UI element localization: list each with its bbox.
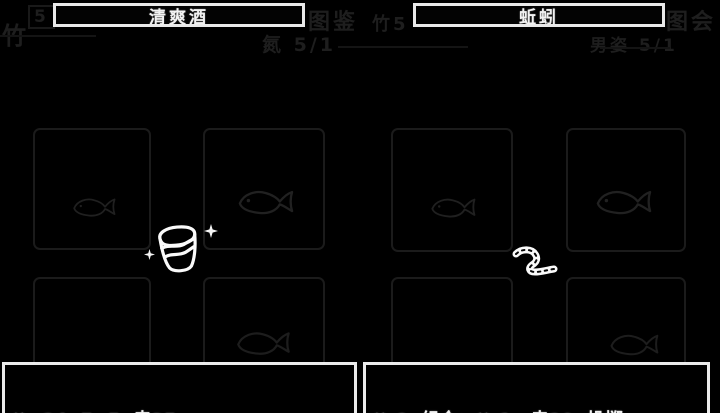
ghost-fish-icon (72, 194, 116, 221)
left-item-stats-box: ♡+24, E+5, 卖35 (2, 362, 357, 413)
ghost-line (338, 46, 468, 48)
ghost-text: 竹 (2, 16, 29, 51)
right-item-title-box: 蚯蚓 (413, 3, 665, 27)
drink-glass-icon[interactable] (151, 221, 208, 279)
left-item-title: 清爽酒 (149, 3, 209, 28)
ghost-fish-icon (430, 194, 476, 222)
inventory-slot[interactable] (33, 128, 151, 250)
sparkle-icon (204, 224, 218, 238)
right-item-stats-box: ♡-8, 组合：♡-1, 卖20, 投掷 走地鱼=大血包 (363, 362, 710, 413)
left-item-title-box: 清爽酒 (53, 3, 305, 27)
sparkle-icon (144, 249, 155, 260)
ghost-fish-icon (605, 330, 663, 360)
ghost-text: 男姿 5/1 (590, 31, 678, 56)
game-screen: 竹 5 图鉴 竹5 氮 5/1 图会 男姿 5/1 清爽酒 蚯蚓 (0, 0, 720, 413)
ghost-text: 5 (28, 5, 55, 29)
right-item-title: 蚯蚓 (519, 3, 559, 28)
ghost-text: 竹5 (372, 10, 409, 36)
ghost-line (600, 47, 670, 49)
earthworm-icon[interactable] (510, 245, 562, 279)
ghost-fish-icon (237, 185, 294, 220)
ghost-text: 氮 5/1 (262, 30, 336, 57)
ghost-fish-icon (595, 185, 652, 220)
ghost-line (0, 35, 96, 37)
inventory-slot[interactable] (391, 128, 513, 252)
ghost-fish-icon (232, 327, 294, 360)
